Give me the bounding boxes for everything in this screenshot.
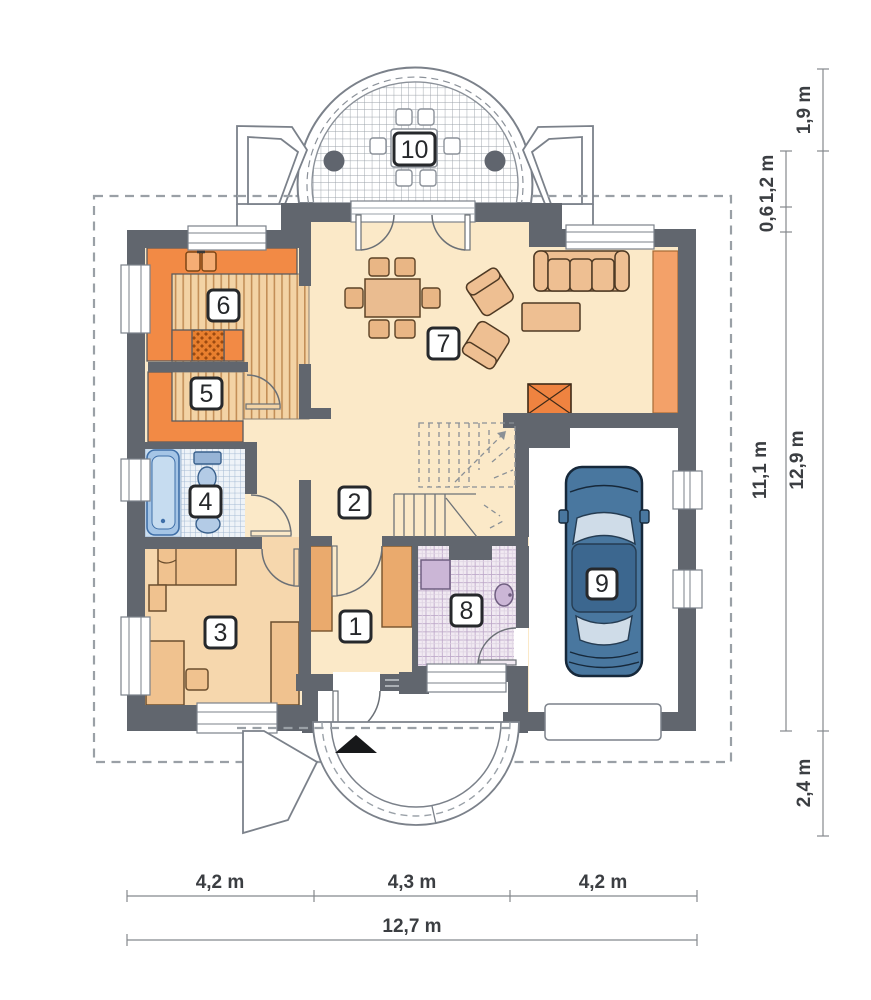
svg-text:7: 7 [437,330,451,358]
svg-text:10: 10 [401,136,429,164]
svg-text:0,6: 0,6 [757,206,778,232]
svg-text:1: 1 [349,613,363,641]
svg-text:2,4 m: 2,4 m [794,759,815,808]
svg-text:4,2 m: 4,2 m [579,872,628,893]
svg-text:12,9 m: 12,9 m [787,430,808,489]
svg-text:2: 2 [348,489,362,517]
svg-text:1,2 m: 1,2 m [757,155,778,204]
svg-text:4,2 m: 4,2 m [196,872,245,893]
svg-text:8: 8 [460,597,474,625]
svg-text:4: 4 [199,488,213,516]
svg-text:5: 5 [200,380,214,408]
svg-text:12,7 m: 12,7 m [382,916,441,937]
svg-text:1,9 m: 1,9 m [794,86,815,135]
svg-text:6: 6 [217,292,231,320]
svg-text:3: 3 [214,619,228,647]
svg-text:11,1 m: 11,1 m [750,441,771,499]
svg-text:9: 9 [595,570,609,598]
svg-text:4,3 m: 4,3 m [388,872,437,893]
